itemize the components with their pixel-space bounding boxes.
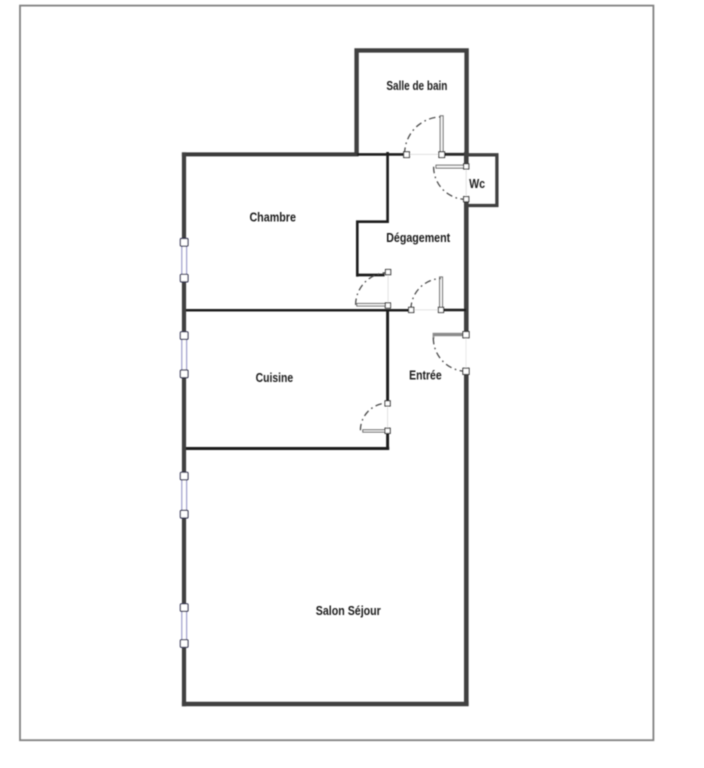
svg-text:Entrée: Entrée — [409, 369, 442, 383]
svg-text:Dégagement: Dégagement — [386, 230, 451, 245]
svg-text:Chambre: Chambre — [249, 209, 296, 224]
svg-text:Salle de bain: Salle de bain — [386, 78, 447, 93]
svg-text:Salon Séjour: Salon Séjour — [316, 603, 381, 618]
svg-text:Wc: Wc — [469, 176, 485, 191]
svg-text:Cuisine: Cuisine — [256, 370, 294, 385]
